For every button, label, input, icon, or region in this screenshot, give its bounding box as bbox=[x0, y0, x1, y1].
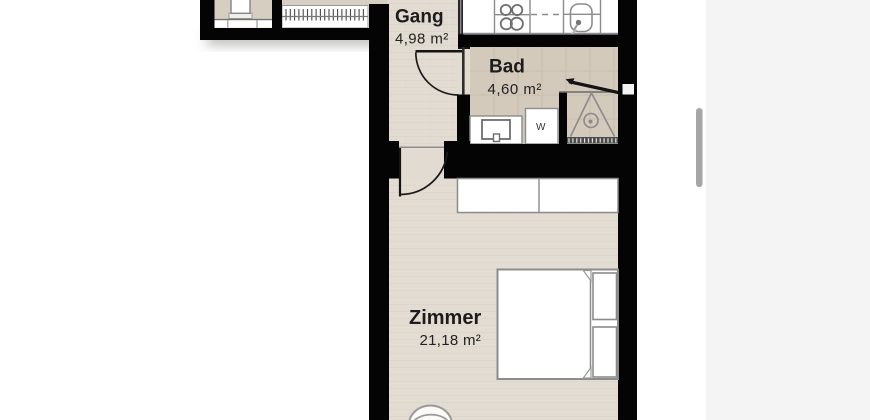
svg-text:Gang: Gang bbox=[395, 7, 444, 28]
svg-text:Zimmer: Zimmer bbox=[409, 307, 481, 329]
svg-text:21,18 m²: 21,18 m² bbox=[420, 332, 482, 349]
svg-text:4,98 m²: 4,98 m² bbox=[395, 31, 449, 48]
svg-text:W: W bbox=[536, 122, 546, 133]
svg-text:4,60 m²: 4,60 m² bbox=[488, 81, 542, 98]
svg-text:Bad: Bad bbox=[489, 57, 525, 78]
